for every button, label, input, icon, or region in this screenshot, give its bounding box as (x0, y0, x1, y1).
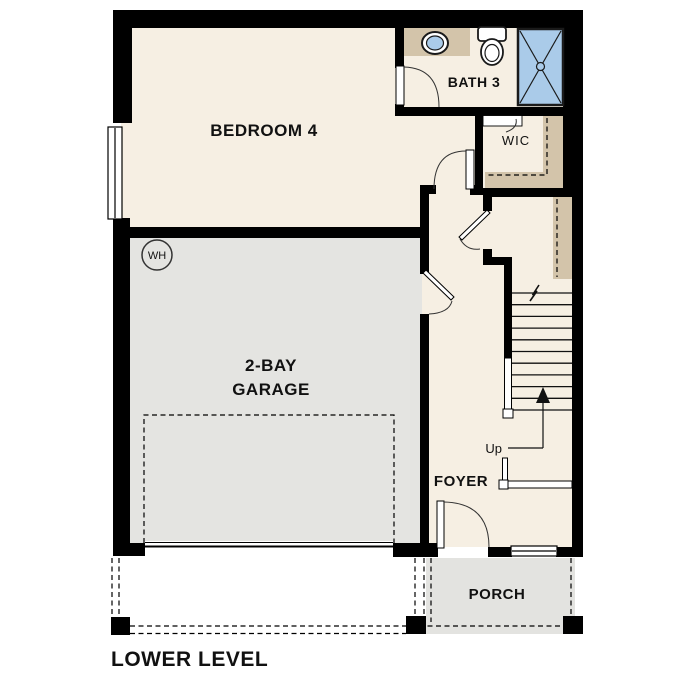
bath3-label: BATH 3 (448, 74, 501, 90)
porch-label: PORCH (469, 586, 526, 603)
wall-stair-left (504, 257, 512, 358)
foyer-window (511, 546, 557, 556)
wall-top (113, 10, 583, 28)
wic-label: WIC (502, 133, 530, 148)
driveway-right-dashed (415, 558, 424, 616)
wall-bedroom-garage (113, 227, 429, 238)
up-label: Up (485, 441, 502, 456)
bedroom4-label: BEDROOM 4 (210, 121, 318, 140)
understair-shelf (553, 197, 572, 279)
floor-plan-page: BEDROOM 4 BATH 3 WIC 2-BAY GARAGE WH Up … (0, 0, 687, 687)
garage-door (145, 541, 393, 549)
shower-fixture (518, 29, 563, 105)
wall-wic-bottom (483, 188, 566, 197)
wall-garage-bottom-left (113, 543, 145, 556)
foyer-label: FOYER (434, 473, 488, 490)
page-title: LOWER LEVEL (111, 648, 268, 671)
foyer-railing-stub (503, 458, 508, 481)
wall-vestibule-wic (475, 107, 483, 195)
floor-plan-drawing: BEDROOM 4 BATH 3 WIC 2-BAY GARAGE WH Up … (0, 0, 687, 687)
toilet-fixture (478, 27, 506, 65)
wall-left-lower (113, 218, 130, 556)
sink-fixture (422, 32, 448, 54)
post-driveway-left (111, 617, 130, 635)
wall-hall-left-upper (420, 185, 429, 274)
driveway-left-dashed (112, 558, 119, 616)
wall-garage-bottom-right (393, 543, 438, 557)
post-porch-right (563, 616, 583, 634)
wall-hall-right-upper (483, 197, 492, 211)
wall-foyer-bottom-right (556, 547, 583, 557)
water-heater-label: WH (148, 250, 166, 262)
bedroom-window (108, 127, 122, 219)
stair-railing-side (505, 358, 512, 414)
post-porch-left (406, 616, 426, 634)
garage-label-line2: GARAGE (232, 380, 310, 399)
wall-hall-left-lower (420, 314, 429, 557)
wall-bedroom-bath (395, 10, 404, 68)
wall-foyer-bottom-mid (488, 547, 512, 557)
stair-railing-cap (503, 409, 513, 418)
garage-label-line1: 2-BAY (245, 356, 297, 375)
stair-railing-bottom (502, 481, 572, 488)
wall-left-upper (113, 10, 132, 123)
stair-railing-bottom-cap (499, 480, 508, 489)
wall-hall-right-lower (483, 249, 492, 258)
